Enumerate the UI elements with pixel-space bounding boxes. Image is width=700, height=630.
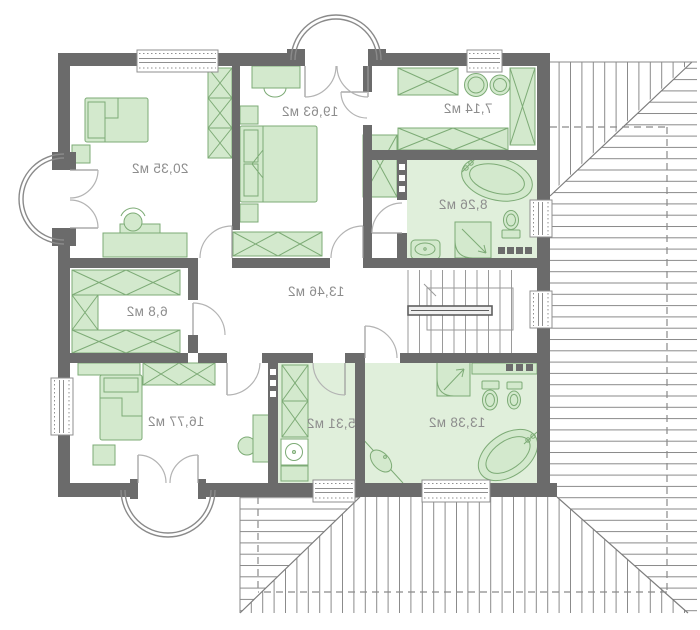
bidet-icon xyxy=(507,382,522,409)
cabinet-icon xyxy=(282,365,308,437)
shower-icon xyxy=(455,222,491,258)
floor-plan-page: 20,35 м2 19,63 м2 7,14 м2 8,26 м2 13,46 … xyxy=(0,0,700,630)
window-icon xyxy=(137,50,218,72)
double-door-icon xyxy=(70,170,98,228)
stair-handrail xyxy=(408,306,492,315)
double-door-icon xyxy=(138,455,198,483)
door-icon xyxy=(331,226,363,258)
desk-icon xyxy=(252,66,300,97)
door-icon xyxy=(372,203,402,233)
room-label-hall: 13,46 м2 xyxy=(288,284,345,299)
single-bed-icon xyxy=(100,375,142,440)
wall-bedrooms-divider xyxy=(232,66,240,230)
room-label-bedroom-top-left: 20,35 м2 xyxy=(132,161,189,176)
door-icon xyxy=(200,226,232,258)
toilet-icon xyxy=(502,211,520,239)
window-icon xyxy=(467,50,502,72)
dryer-icon xyxy=(490,75,510,95)
room-label-bedroom-bottom-left: 16,77 м2 xyxy=(148,414,205,429)
staircase xyxy=(408,270,513,353)
window-icon xyxy=(51,378,73,435)
wardrobe-icon xyxy=(72,295,98,330)
door-icon xyxy=(341,92,367,118)
wardrobe-icon xyxy=(398,68,458,95)
desk-icon xyxy=(253,415,270,462)
wardrobe-icon xyxy=(72,330,180,353)
toilet-icon xyxy=(482,381,499,410)
room-label-utility-room: 5,31 м2 xyxy=(307,416,356,431)
door-icon xyxy=(193,303,225,335)
cabinet-icon xyxy=(281,466,308,481)
door-icon xyxy=(365,326,397,358)
wardrobe-icon xyxy=(233,232,322,256)
washer-icon xyxy=(281,439,308,465)
nightstand-icon xyxy=(240,204,258,222)
double-bed-icon xyxy=(240,126,317,202)
wardrobe-icon xyxy=(208,68,232,158)
washing-machine-icon xyxy=(465,74,488,97)
room-label-bathroom-upper: 8,26 м2 xyxy=(439,197,488,212)
window-icon xyxy=(530,200,552,237)
wardrobe-icon xyxy=(143,363,215,385)
shower-icon xyxy=(437,362,470,396)
nightstand-icon xyxy=(93,445,115,465)
cabinet-icon xyxy=(398,128,508,150)
shelf-icon xyxy=(78,363,140,375)
room-label-closet: 6,8 м2 xyxy=(126,304,167,319)
window-icon xyxy=(422,480,490,502)
window-icon xyxy=(530,291,552,328)
door-icon xyxy=(227,363,260,395)
wardrobe-icon xyxy=(72,270,180,295)
cabinet-icon xyxy=(510,68,535,145)
room-label-bedroom-top-center: 19,63 м2 xyxy=(282,104,339,119)
floor-plan: 20,35 м2 19,63 м2 7,14 м2 8,26 м2 13,46 … xyxy=(0,0,700,630)
room-label-walkin-closet: 7,14 м2 xyxy=(444,101,493,116)
window-icon xyxy=(313,480,355,502)
single-bed-icon xyxy=(85,98,148,142)
sink-icon xyxy=(411,240,440,259)
stair-direction-arrow xyxy=(424,284,436,296)
room-label-bathroom-lower: 13,38 м2 xyxy=(429,415,486,430)
nightstand-icon xyxy=(240,106,258,124)
desk-icon xyxy=(103,224,187,257)
